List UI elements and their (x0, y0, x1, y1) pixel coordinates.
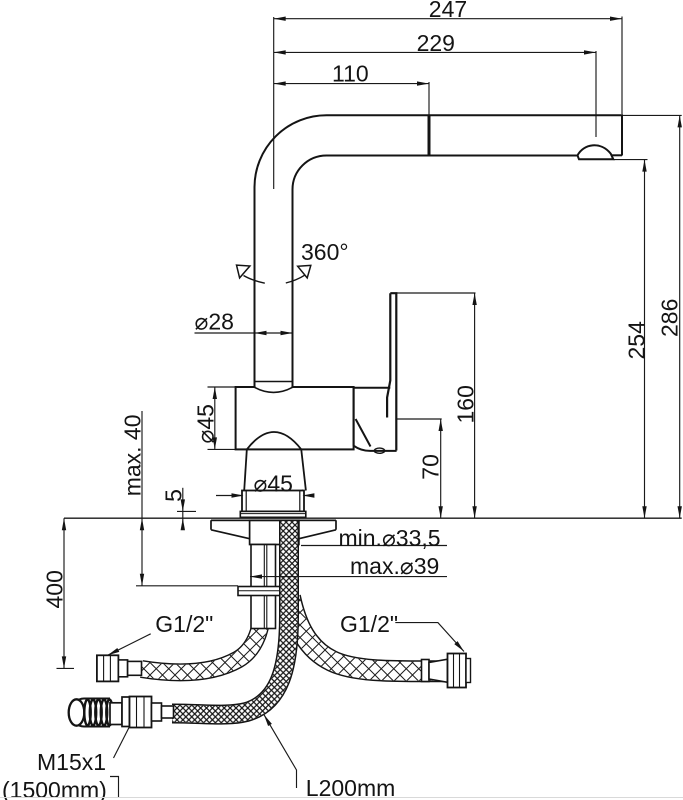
svg-text:5: 5 (161, 489, 187, 502)
svg-text:70: 70 (418, 454, 444, 480)
svg-text:G1/2": G1/2" (340, 611, 398, 637)
svg-text:160: 160 (453, 385, 479, 423)
svg-text:229: 229 (417, 30, 455, 56)
svg-text:G1/2": G1/2" (155, 611, 213, 637)
svg-text:254: 254 (623, 321, 649, 360)
svg-text:247: 247 (429, 0, 467, 22)
svg-text:⌀45: ⌀45 (254, 471, 293, 497)
svg-text:400: 400 (42, 570, 68, 608)
svg-text:M15x1: M15x1 (37, 749, 106, 775)
svg-text:360°: 360° (301, 239, 349, 265)
svg-text:⌀28: ⌀28 (195, 309, 234, 335)
svg-text:max. 40: max. 40 (120, 414, 146, 496)
svg-text:110: 110 (332, 61, 369, 87)
svg-text:⌀45: ⌀45 (193, 404, 219, 443)
svg-text:max.⌀39: max.⌀39 (350, 553, 439, 579)
svg-text:286: 286 (657, 299, 683, 337)
svg-text:min.⌀33,5: min.⌀33,5 (339, 525, 441, 551)
svg-text:(1500mm): (1500mm) (2, 777, 107, 800)
svg-text:L200mm: L200mm (306, 775, 395, 800)
